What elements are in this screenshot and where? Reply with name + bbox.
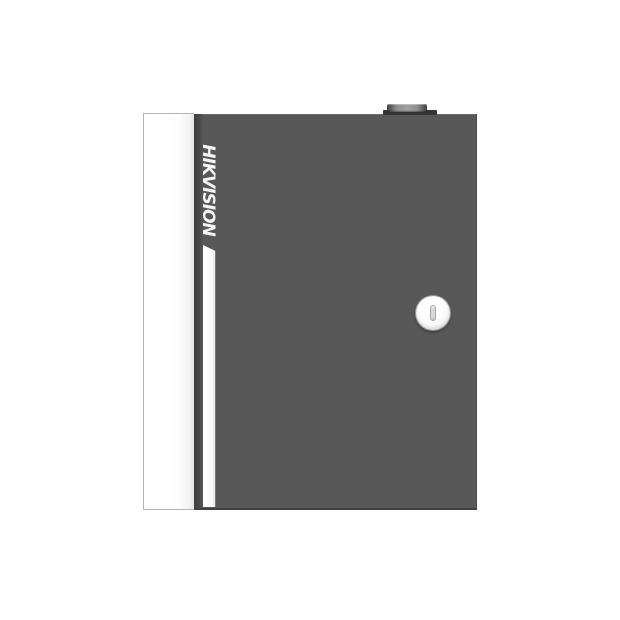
door-highlight-stripe <box>203 245 216 507</box>
enclosure-side-panel <box>143 113 194 510</box>
hikvision-logo: HIKVISION <box>199 138 217 242</box>
top-hinge-pin <box>387 104 427 112</box>
door-keylock <box>416 296 450 330</box>
enclosure-door: HIKVISION <box>194 114 477 510</box>
access-control-enclosure: HIKVISION <box>0 0 620 620</box>
keyhole-icon <box>430 305 436 321</box>
product-photo-canvas: HIKVISION <box>0 0 620 620</box>
